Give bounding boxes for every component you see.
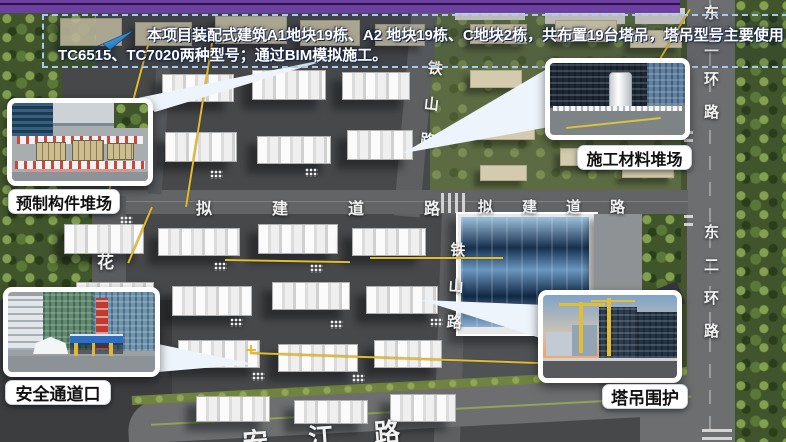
small-structure — [230, 318, 243, 327]
residential-building — [470, 70, 522, 88]
inset-precast-trees — [114, 103, 148, 128]
slide-top-bar — [0, 0, 680, 13]
building-cluster — [257, 136, 331, 164]
inset-precast-ground — [12, 172, 148, 181]
inset-precast-stack — [36, 142, 65, 161]
inset-precast-stack — [72, 140, 104, 162]
inset-crane-mast-2 — [607, 298, 610, 356]
inset-safety-canopy-leg — [92, 343, 96, 356]
building-cluster — [196, 396, 270, 422]
small-structure — [214, 262, 227, 271]
inset-precast-white-building — [53, 103, 114, 126]
inset-photo-safety-passage — [3, 287, 160, 377]
inset-crane-mid-building — [572, 325, 596, 357]
building-cluster — [278, 344, 358, 372]
inset-precast-dark-building — [12, 103, 53, 136]
building-cluster — [374, 340, 442, 368]
inset-safety-canopy-leg — [109, 343, 113, 356]
residential-building — [480, 165, 527, 181]
ring-road-hatch-2 — [684, 214, 693, 226]
building-cluster — [366, 286, 438, 314]
crane-line — [370, 257, 503, 259]
slide-canvas: 东二环路 东二环路 铁山路 铁山路 拟建道路 拟建道路 安江路 花 本项目装配式… — [0, 0, 786, 442]
building-cluster — [158, 228, 240, 256]
callout-label-precast-yard: 预制构件堆场 — [8, 189, 120, 214]
inset-precast-stack — [107, 143, 133, 161]
small-structure — [352, 374, 365, 383]
inset-crane-far-building — [546, 332, 573, 355]
small-structure — [330, 320, 343, 329]
inset-material-dark-towers — [550, 63, 647, 108]
inset-crane-dark-building-1 — [599, 307, 637, 358]
inset-safety-canopy-leg — [74, 343, 78, 356]
inset-crane-dark-building-2 — [637, 312, 677, 358]
building-cluster — [347, 130, 413, 160]
inset-crane-ground — [543, 358, 677, 381]
banner-line2: TC6515、TC7020两种型号；通过BIM模拟施工。 — [58, 44, 387, 65]
small-structure — [120, 216, 133, 225]
inset-material-silo — [609, 72, 631, 109]
inset-material-light-tower — [647, 63, 685, 105]
banner-line1: 本项目装配式建筑A1地块19栋、A2 地块19栋、C地块2栋，共布置19台塔吊，… — [147, 24, 784, 45]
callout-label-crane-enclosure: 塔吊围护 — [602, 384, 688, 409]
slide-top-bar-divider — [0, 3, 680, 5]
inset-photo-material-yard — [545, 58, 690, 140]
road-label-hua: 花 — [97, 248, 114, 273]
small-structure — [210, 170, 223, 179]
callout-label-crane-enclosure-text: 塔吊围护 — [611, 384, 679, 409]
inset-photo-crane-enclosure — [538, 290, 682, 383]
road-label-east-ring-bottom: 东二环路 — [700, 224, 721, 356]
inset-crane-jib-2 — [591, 300, 635, 302]
callout-label-material-yard-text: 施工材料堆场 — [586, 146, 682, 170]
small-structure — [430, 318, 443, 327]
building-cluster — [258, 224, 338, 254]
building-cluster — [272, 282, 350, 310]
building-cluster — [165, 132, 237, 162]
callout-label-safety-passage: 安全通道口 — [5, 380, 111, 405]
road-label-proposed-left: 拟建道路 — [196, 195, 500, 219]
crane-line — [225, 259, 350, 263]
crane-marker — [250, 345, 252, 354]
small-structure — [310, 264, 323, 273]
small-structure — [252, 372, 265, 381]
small-structure — [305, 168, 318, 177]
inset-photo-precast-yard — [7, 98, 153, 186]
inset-safety-ground — [8, 356, 155, 372]
callout-label-safety-passage-text: 安全通道口 — [16, 380, 101, 405]
inset-precast-fence-front — [15, 161, 146, 170]
building-cluster — [172, 286, 252, 316]
anjiang-east-end — [640, 412, 702, 442]
building-cluster — [342, 72, 410, 100]
road-label-proposed-right: 拟建道路 — [478, 196, 654, 217]
building-cluster — [352, 228, 426, 256]
callout-label-precast-yard-text: 预制构件堆场 — [16, 190, 112, 214]
inset-crane-mast-1 — [579, 302, 582, 353]
callout-label-material-yard: 施工材料堆场 — [577, 145, 692, 170]
